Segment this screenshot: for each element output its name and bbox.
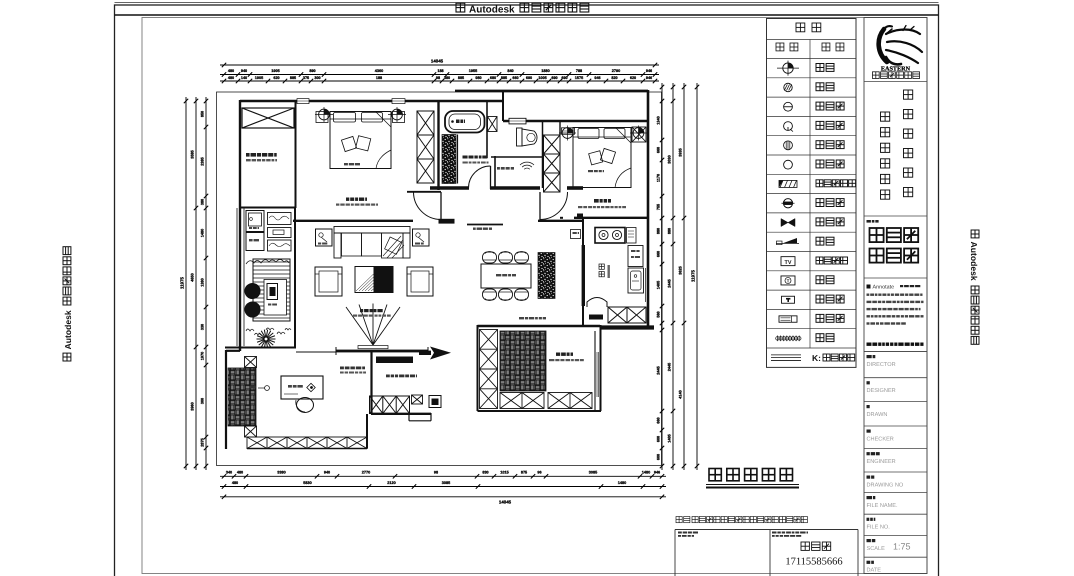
svg-text:Autodesk: Autodesk — [469, 5, 515, 16]
svg-text:188: 188 — [376, 76, 382, 80]
svg-text:660: 660 — [657, 417, 661, 423]
svg-text:1575: 1575 — [575, 76, 583, 80]
svg-text:850: 850 — [201, 111, 205, 117]
svg-text:788: 788 — [576, 69, 582, 73]
svg-text:2790: 2790 — [612, 69, 620, 73]
svg-text:890: 890 — [309, 69, 315, 73]
svg-text:188: 188 — [437, 69, 443, 73]
svg-text:CHECKER: CHECKER — [867, 437, 894, 443]
svg-text:3585: 3585 — [191, 150, 195, 158]
svg-text:880: 880 — [657, 228, 661, 234]
svg-text:1480: 1480 — [201, 229, 205, 237]
svg-text:480: 480 — [237, 471, 243, 475]
svg-text:1405: 1405 — [657, 281, 661, 289]
svg-text:3085: 3085 — [589, 471, 597, 475]
svg-text:480: 480 — [228, 69, 234, 73]
svg-text:480: 480 — [232, 481, 238, 485]
svg-text:2445: 2445 — [668, 279, 672, 287]
svg-text:T: T — [787, 279, 790, 284]
svg-text:11975: 11975 — [180, 276, 185, 289]
svg-text:ENGINEER: ENGINEER — [867, 459, 896, 465]
svg-text:480: 480 — [228, 76, 234, 80]
svg-text:1005: 1005 — [538, 76, 546, 80]
svg-text:Autodesk: Autodesk — [969, 242, 979, 281]
svg-text:1955: 1955 — [469, 69, 477, 73]
svg-text:2875: 2875 — [201, 438, 205, 446]
svg-text:DIRECTOR: DIRECTOR — [867, 362, 896, 368]
svg-text:840: 840 — [507, 69, 513, 73]
svg-text:SCALE: SCALE — [867, 546, 886, 552]
svg-text:3935: 3935 — [679, 148, 683, 156]
svg-text:660: 660 — [512, 76, 518, 80]
svg-text:1340: 1340 — [657, 116, 661, 124]
svg-text:1405: 1405 — [668, 434, 672, 442]
svg-text:Autodesk: Autodesk — [63, 310, 73, 349]
svg-text:820: 820 — [611, 76, 617, 80]
svg-text:885: 885 — [458, 76, 464, 80]
svg-text:600: 600 — [657, 454, 661, 460]
svg-text:5830: 5830 — [303, 481, 311, 485]
svg-text:946: 946 — [646, 76, 652, 80]
svg-text:DATE: DATE — [867, 568, 882, 574]
svg-text:Annotate: Annotate — [873, 285, 895, 291]
svg-text:946: 946 — [654, 471, 660, 475]
svg-text:3085: 3085 — [442, 481, 450, 485]
svg-text:FILE NO.: FILE NO. — [867, 525, 891, 531]
svg-text:FILE NAME.: FILE NAME. — [867, 503, 899, 509]
svg-text:980: 980 — [475, 76, 481, 80]
svg-text:2445: 2445 — [657, 366, 661, 374]
svg-text:1480: 1480 — [642, 471, 650, 475]
svg-text:660: 660 — [657, 251, 661, 257]
svg-text:3030: 3030 — [668, 155, 672, 163]
svg-text:2120: 2120 — [387, 481, 395, 485]
svg-text:1970: 1970 — [201, 352, 205, 360]
svg-text:300: 300 — [314, 76, 320, 80]
svg-text:1480: 1480 — [618, 481, 626, 485]
svg-text:620: 620 — [630, 76, 636, 80]
svg-text:940: 940 — [241, 69, 247, 73]
svg-text:830: 830 — [482, 471, 488, 475]
svg-text:660: 660 — [657, 147, 661, 153]
svg-text:620: 620 — [273, 76, 279, 80]
svg-text:2385: 2385 — [201, 157, 205, 165]
svg-text:380: 380 — [444, 76, 450, 80]
svg-text:1905: 1905 — [271, 69, 279, 73]
svg-text:140: 140 — [241, 76, 247, 80]
svg-text:940: 940 — [324, 471, 330, 475]
svg-text:17115585666: 17115585666 — [785, 557, 842, 568]
svg-text:690: 690 — [561, 76, 567, 80]
svg-text:300: 300 — [201, 398, 205, 404]
svg-text:690: 690 — [551, 76, 557, 80]
svg-text:1170: 1170 — [657, 174, 661, 182]
svg-text:98: 98 — [436, 76, 440, 80]
svg-text:946: 946 — [646, 69, 652, 73]
svg-text:2770: 2770 — [362, 471, 370, 475]
svg-text:3625: 3625 — [679, 266, 683, 274]
svg-text:1015: 1015 — [500, 471, 508, 475]
svg-text:600: 600 — [657, 436, 661, 442]
svg-text:1380: 1380 — [201, 278, 205, 286]
svg-text:DRAWING NO: DRAWING NO — [867, 483, 904, 489]
svg-text:946: 946 — [594, 76, 600, 80]
svg-text:14045: 14045 — [499, 500, 512, 505]
svg-text:755: 755 — [657, 204, 661, 210]
svg-text:4140: 4140 — [679, 390, 683, 398]
svg-text:4650: 4650 — [191, 273, 195, 281]
svg-text:4360: 4360 — [375, 69, 383, 73]
svg-text:96: 96 — [537, 471, 541, 475]
svg-text:560: 560 — [657, 311, 661, 317]
svg-text:3380: 3380 — [277, 471, 285, 475]
svg-text:DRAWN: DRAWN — [867, 412, 888, 418]
svg-text:3960: 3960 — [191, 402, 195, 410]
svg-text:14045: 14045 — [431, 59, 444, 64]
svg-text:11975: 11975 — [691, 269, 696, 282]
svg-text:340: 340 — [226, 471, 232, 475]
svg-text:1:75: 1:75 — [893, 542, 911, 552]
svg-text:880: 880 — [668, 228, 672, 234]
svg-text:885: 885 — [501, 76, 507, 80]
svg-text:330: 330 — [201, 324, 205, 330]
svg-text:690: 690 — [526, 76, 532, 80]
svg-text:375: 375 — [303, 76, 309, 80]
svg-text:DESIGNER: DESIGNER — [867, 388, 896, 394]
svg-text:K:: K: — [812, 353, 821, 363]
svg-text:875: 875 — [521, 471, 527, 475]
svg-text:1880: 1880 — [541, 69, 549, 73]
svg-text:2445: 2445 — [668, 363, 672, 371]
svg-text:TV: TV — [785, 260, 792, 266]
svg-text:98: 98 — [434, 471, 438, 475]
svg-text:380: 380 — [201, 199, 205, 205]
svg-text:680: 680 — [490, 76, 496, 80]
svg-text:885: 885 — [290, 76, 296, 80]
svg-text:1905: 1905 — [255, 76, 263, 80]
